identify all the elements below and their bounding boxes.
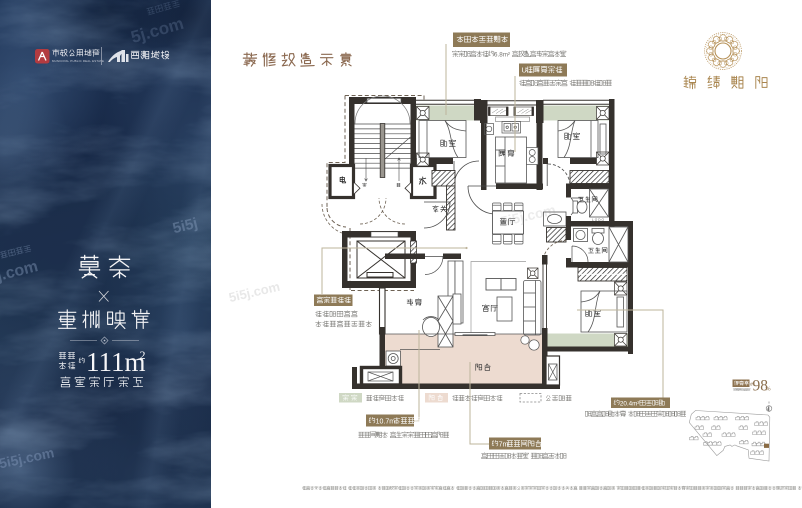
svg-text:%: % bbox=[766, 385, 771, 392]
svg-text:10.7m: 10.7m bbox=[376, 418, 396, 425]
svg-text:20.4m²: 20.4m² bbox=[620, 400, 640, 407]
svg-text:j.com: j.com bbox=[0, 258, 40, 285]
svg-text:5i5j.com: 5i5j.com bbox=[227, 279, 281, 305]
svg-text:6.8m²: 6.8m² bbox=[494, 52, 510, 59]
svg-text:7m: 7m bbox=[499, 441, 509, 448]
svg-text:5j.com: 5j.com bbox=[129, 14, 186, 47]
svg-text:5i5j.com: 5i5j.com bbox=[0, 444, 56, 471]
svg-text:2: 2 bbox=[140, 348, 146, 362]
svg-text:LODO: LODO bbox=[592, 218, 605, 222]
svg-text:111m: 111m bbox=[86, 347, 146, 377]
svg-text:5i5j: 5i5j bbox=[171, 215, 199, 238]
svg-text:U: U bbox=[522, 66, 527, 75]
svg-text:MUNICIPAL PUBLIC REAL ESTATE: MUNICIPAL PUBLIC REAL ESTATE bbox=[52, 59, 104, 63]
